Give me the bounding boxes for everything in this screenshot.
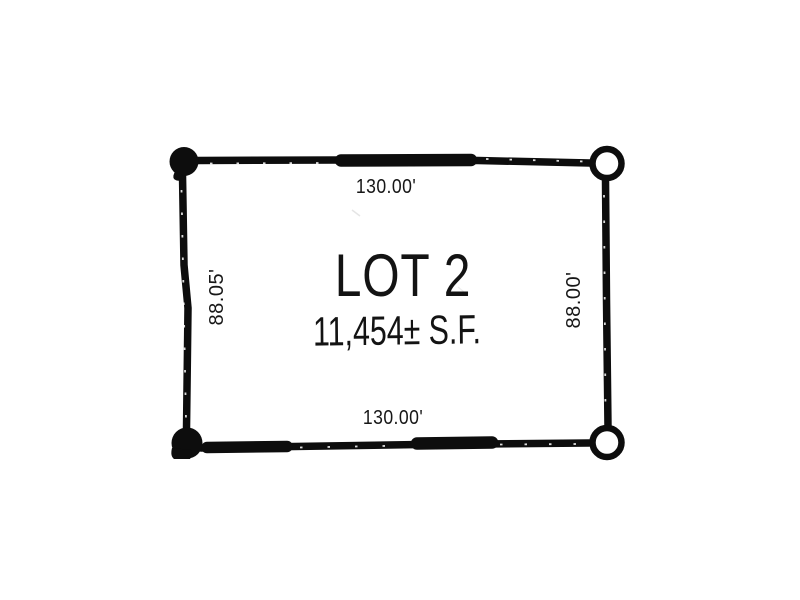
boundary-line-bottom-ink-bulge-left bbox=[207, 447, 287, 448]
lot-title: LOT 2 bbox=[335, 246, 472, 306]
dimension-label-left: 88.05' bbox=[207, 269, 227, 326]
boundary-line-right bbox=[606, 180, 609, 427]
dimension-label-right: 88.00' bbox=[564, 272, 584, 329]
boundary-line-left bbox=[183, 175, 189, 429]
boundary-line-top-ink-bulge bbox=[341, 160, 471, 161]
lot-area-text: 11,454± S.F. bbox=[313, 309, 481, 352]
corner-marker-top-left-filled-circle bbox=[170, 147, 199, 176]
corner-marker-bottom-right-open-circle bbox=[593, 428, 622, 457]
dimension-label-bottom: 130.00' bbox=[363, 408, 423, 428]
dimension-label-top: 130.00' bbox=[356, 177, 416, 197]
scan-smudge bbox=[352, 210, 360, 216]
plat-page: 130.00' 130.00' 88.05' 88.00' LOT 2 11,4… bbox=[0, 0, 800, 600]
corner-marker-top-right-open-circle bbox=[593, 149, 622, 178]
boundary-line-bottom-ink-bulge-right bbox=[417, 443, 492, 444]
